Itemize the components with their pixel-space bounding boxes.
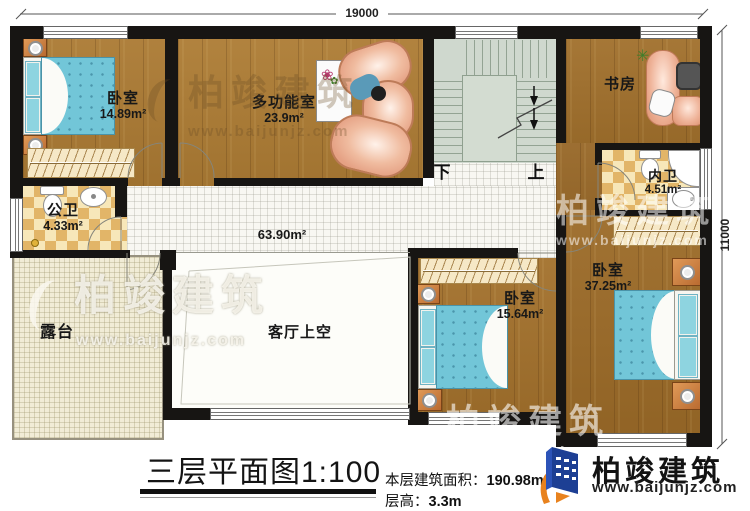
- terrace-floor: [12, 255, 164, 440]
- room-label-living-void: 客厅上空: [256, 324, 344, 341]
- sink-drain: [690, 197, 694, 201]
- wall: [10, 250, 130, 258]
- window: [640, 26, 698, 39]
- room-area: 15.64m²: [486, 307, 554, 321]
- bed-pillow: [679, 337, 697, 377]
- room-name: 书房: [598, 76, 642, 93]
- corridor-area-label: 63.90m²: [250, 228, 314, 243]
- wall: [163, 408, 210, 420]
- room-area: 37.25m²: [578, 279, 638, 293]
- room-area: 4.51m²: [638, 184, 688, 197]
- nightstand: [672, 258, 702, 286]
- room-area: 23.9m²: [248, 111, 320, 125]
- stair-right-flight: [517, 78, 556, 162]
- room-name: 卧室: [486, 290, 554, 307]
- brand-logo-icon: [536, 444, 584, 506]
- room-label-public-bath: 公卫 4.33m²: [34, 202, 92, 234]
- wall: [700, 210, 712, 447]
- floorplan-canvas: ❀ ✿ ✳: [0, 0, 750, 511]
- wall: [700, 26, 712, 148]
- room-label-terrace: 露台: [34, 324, 80, 342]
- room-area: 4.33m²: [34, 219, 92, 233]
- person-head: [371, 86, 386, 101]
- stair-left-flight: [434, 78, 463, 162]
- window: [597, 433, 687, 447]
- nightstand: [672, 382, 702, 410]
- wall: [10, 178, 128, 186]
- plan-title: 三层平面图1:100: [146, 447, 408, 491]
- flower-decor: ✿: [330, 76, 338, 87]
- window: [455, 26, 518, 39]
- bed-pillow: [421, 348, 435, 384]
- wall: [423, 26, 434, 178]
- wardrobe: [613, 216, 701, 246]
- dimension-top-label: 19000: [336, 5, 388, 21]
- wall: [408, 412, 428, 425]
- room-name: 卧室: [90, 90, 156, 107]
- room-area: 14.89m²: [90, 107, 156, 121]
- nightstand: [23, 38, 47, 57]
- wall: [10, 26, 23, 198]
- room-name: 公卫: [34, 202, 92, 219]
- room-label-multifunction: 多功能室 23.9m²: [248, 94, 320, 126]
- stair-upper-flight: [466, 40, 554, 78]
- wall: [408, 248, 418, 412]
- room-label-bedroom1: 卧室 14.89m²: [90, 90, 156, 122]
- floor-height-value: 3.3m: [429, 494, 462, 510]
- stair-up-label: 上: [522, 158, 550, 183]
- wall: [556, 26, 566, 143]
- bed-pillow: [26, 98, 40, 132]
- wall: [214, 178, 423, 186]
- window: [10, 198, 23, 252]
- stair-landing: [462, 75, 517, 162]
- wardrobe: [27, 148, 135, 178]
- wall: [518, 26, 640, 39]
- sink-drain: [91, 194, 96, 199]
- room-area: 63.90m²: [250, 228, 314, 243]
- bed-pillow: [679, 295, 697, 335]
- plant-icon: ✳: [636, 46, 649, 66]
- wall: [165, 26, 178, 178]
- wall: [162, 178, 180, 186]
- nightstand: [416, 284, 440, 304]
- wardrobe: [420, 258, 538, 284]
- title-underline-thin: [140, 497, 376, 498]
- room-name: 内卫: [638, 168, 688, 184]
- brand-url: www.baijunjz.com: [592, 479, 737, 496]
- wall: [600, 143, 700, 150]
- floor-area-line: 本层建筑面积：190.98m²: [385, 469, 549, 490]
- room-label-bedroom-mid: 卧室 15.64m²: [486, 290, 554, 322]
- room-name: 卧室: [578, 262, 638, 279]
- room-name: 客厅上空: [256, 324, 344, 341]
- wall: [163, 253, 172, 408]
- room-label-inner-bath: 内卫 4.51m²: [638, 168, 688, 197]
- title-underline: [140, 489, 376, 494]
- room-name: 露台: [34, 324, 80, 342]
- room-label-study: 书房: [598, 76, 642, 93]
- floor-height-label: 层高：: [385, 494, 429, 510]
- dimension-right-label: 11000: [718, 208, 732, 262]
- window: [210, 408, 410, 420]
- floor-area-label: 本层建筑面积：: [385, 473, 487, 489]
- corridor-open-edge: [176, 252, 410, 253]
- wall: [687, 433, 712, 447]
- floor-drain: [31, 239, 39, 247]
- stair-down-label: 下: [428, 158, 456, 183]
- room-label-bedroom-master: 卧室 37.25m²: [578, 262, 638, 294]
- office-chair: [676, 62, 702, 90]
- wall: [500, 412, 556, 425]
- wall: [410, 248, 518, 258]
- bed-pillow: [26, 62, 40, 96]
- room-name: 多功能室: [248, 94, 320, 111]
- window: [428, 412, 500, 425]
- wall: [115, 186, 127, 217]
- wall: [595, 143, 602, 165]
- wall: [595, 210, 700, 216]
- window: [43, 26, 128, 39]
- window: [700, 148, 712, 210]
- floor-height-line: 层高：3.3m: [385, 490, 462, 511]
- nightstand: [416, 389, 442, 411]
- bed-pillow: [421, 310, 435, 346]
- wall: [556, 215, 566, 435]
